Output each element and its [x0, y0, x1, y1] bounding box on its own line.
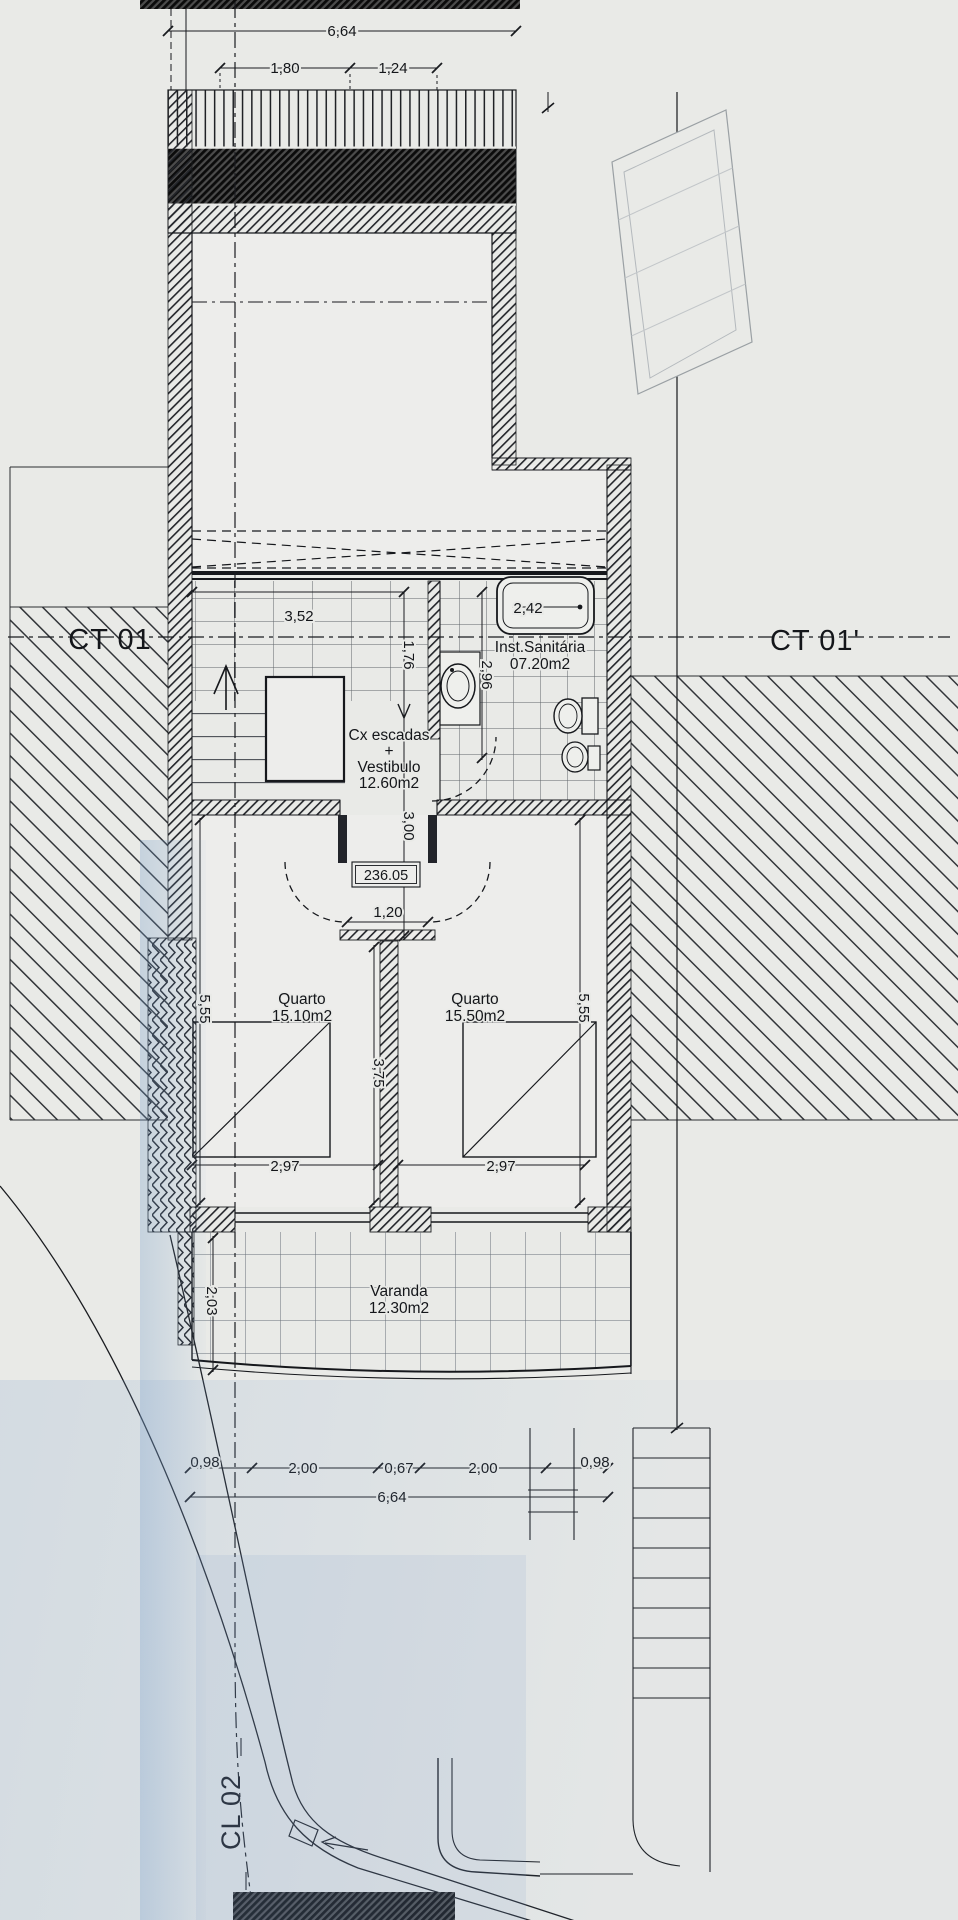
- stairwell-label-1: Cx escadas: [349, 727, 430, 744]
- road-marking-rect: [289, 1820, 318, 1846]
- stairwell-area: 12.60m2: [359, 775, 419, 792]
- dim-bot-b: 2,00: [288, 1460, 317, 1477]
- dim-door-width: 1,20: [373, 904, 402, 921]
- balcony-label: Varanda: [370, 1283, 428, 1300]
- section-marker-left: CT 01: [68, 624, 151, 656]
- dim-bot-d: 2,00: [468, 1460, 497, 1477]
- dim-vestibule-depth: 3,00: [400, 811, 417, 840]
- dim-window-right: 2,97: [486, 1158, 515, 1175]
- dim-bot-e: 0,98: [580, 1454, 609, 1471]
- dim-bath-depth: 2,96: [478, 660, 495, 689]
- dim-bot-c: 0,67: [384, 1460, 413, 1477]
- section-marker-bottom: CL 02: [216, 1774, 246, 1850]
- washbasin: [440, 652, 480, 725]
- stairwell-label-2: +: [384, 743, 393, 760]
- bedroom-right-label: Quarto: [451, 991, 498, 1008]
- curb-corner-outer: [438, 1758, 540, 1876]
- dim-top-b: 1,24: [378, 60, 407, 77]
- toilet: [554, 698, 598, 734]
- neighbor-roof-panel: [612, 110, 752, 394]
- dim-mid-depth: 3,75: [370, 1058, 387, 1087]
- bathroom-area: 07.20m2: [510, 656, 570, 673]
- stair-void: [266, 677, 344, 781]
- floor-plan-drawing: 6,64 1,80 1,24 3,52 1,76 2,42 2,96 3,00 …: [0, 0, 958, 1920]
- floor-plan-canvas: 6,64 1,80 1,24 3,52 1,76 2,42 2,96 3,00 …: [0, 0, 958, 1920]
- bidet: [562, 742, 600, 772]
- dim-room-depth-left: 5,55: [196, 994, 213, 1023]
- balcony-area: 12.30m2: [369, 1300, 429, 1317]
- exterior-stairs: [633, 1428, 710, 1700]
- curb-corner-inner: [452, 1758, 540, 1862]
- bedroom-left-label: Quarto: [278, 991, 325, 1008]
- exterior-hatch-right: [631, 676, 958, 1120]
- dim-bottom-total: 6,64: [377, 1489, 406, 1506]
- dim-stair-width: 3,52: [284, 608, 313, 625]
- level-mark: 236.05: [364, 868, 408, 884]
- dim-bot-a: 0,98: [190, 1454, 219, 1471]
- bedroom-right-area: 15.50m2: [445, 1008, 505, 1025]
- bedroom-left-area: 15.10m2: [272, 1008, 332, 1025]
- section-marker-right: CT 01': [770, 625, 860, 657]
- dim-top-total: 6,64: [327, 23, 356, 40]
- dim-window-left: 2,97: [270, 1158, 299, 1175]
- dim-balcony-depth: 2,03: [203, 1286, 220, 1315]
- stairwell-label-3: Vestibulo: [358, 759, 421, 776]
- bottom-section-band: [233, 1892, 455, 1920]
- exterior-hatch-left: [10, 467, 168, 1120]
- dim-top-a: 1,80: [270, 60, 299, 77]
- bathroom-label: Inst.Sanitária: [495, 639, 586, 656]
- dim-stair-depth: 1,76: [400, 640, 417, 669]
- dim-room-depth-right: 5,55: [575, 993, 592, 1022]
- dim-tub-length: 2,42: [513, 600, 542, 617]
